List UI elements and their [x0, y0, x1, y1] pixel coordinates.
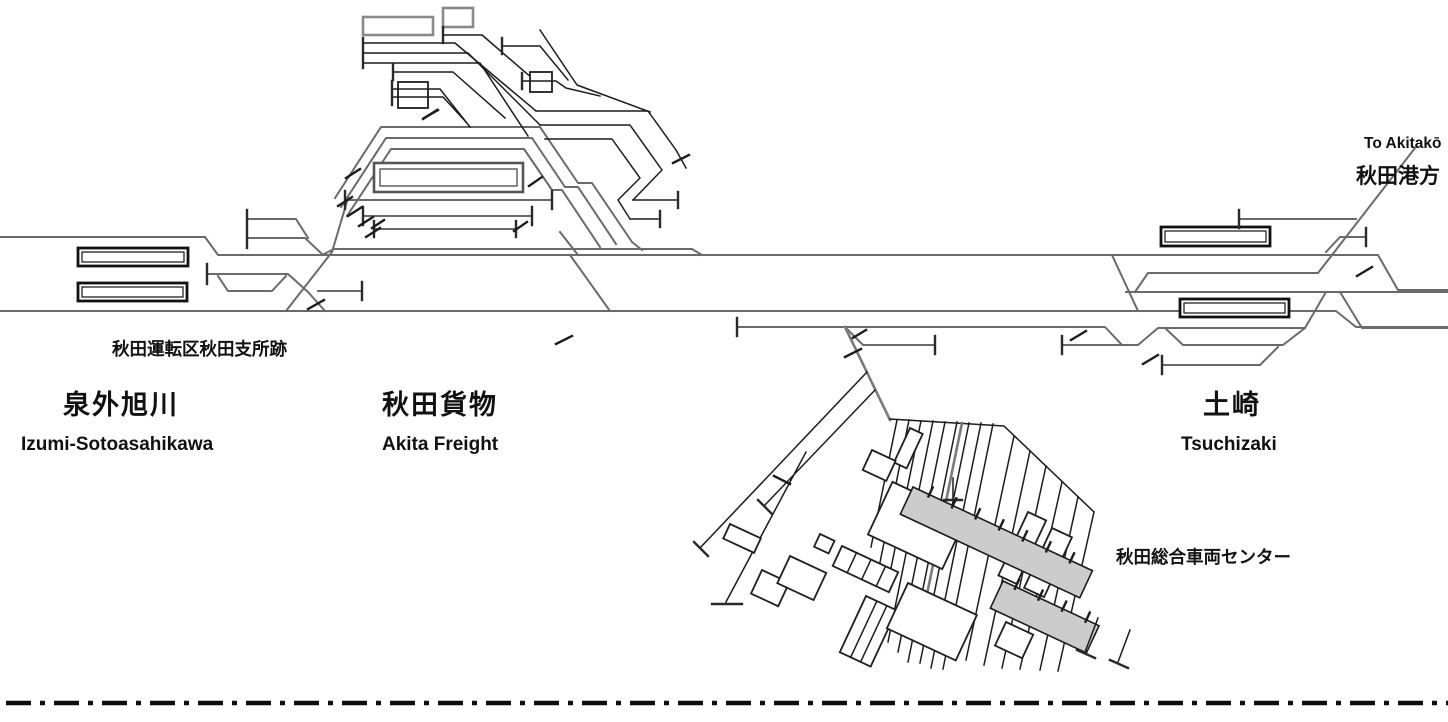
shop-row — [833, 546, 898, 592]
center-lead-tracks — [737, 318, 1122, 420]
platform — [78, 283, 187, 301]
shop-building — [840, 596, 897, 667]
akita-freight-yard — [286, 110, 702, 344]
yard-building — [894, 428, 923, 468]
track-diagram-svg — [0, 0, 1448, 722]
freight-platform — [374, 163, 523, 192]
to-akitako-ja-label: 秋田港方 — [1356, 160, 1440, 190]
workshop-building — [887, 583, 977, 660]
station-name-izumi-en: Izumi-Sotoasahikawa — [21, 434, 213, 456]
to-akitako-en-label: To Akitakō — [1364, 135, 1442, 153]
engine-shed — [398, 82, 428, 108]
station-name-izumi-ja: 泉外旭川 — [63, 383, 179, 422]
yard-building — [995, 622, 1033, 658]
station-name-akita-freight-ja: 秋田貨物 — [382, 383, 498, 422]
rolling-stock-center-label: 秋田総合車両センター — [1116, 544, 1291, 569]
depot-site-label: 秋田運転区秋田支所跡 — [112, 336, 287, 361]
station-name-tsuchizaki-ja: 土崎 — [1203, 383, 1261, 422]
akita-freight-upper-sidings — [363, 8, 650, 136]
izumi-sotoasahikawa-station — [78, 210, 362, 311]
yard-building — [723, 524, 761, 553]
station-name-tsuchizaki-en: Tsuchizaki — [1181, 434, 1277, 456]
yard-hut — [814, 534, 834, 553]
rolling-stock-center-yard — [694, 372, 1130, 671]
platform — [78, 248, 188, 266]
akita-freight-east-fan — [536, 111, 689, 227]
yard-building — [443, 8, 473, 27]
platform — [1180, 299, 1289, 317]
platform — [1161, 227, 1270, 246]
rail-track-diagram: 秋田運転区秋田支所跡 泉外旭川 Izumi-Sotoasahikawa 秋田貨物… — [0, 0, 1448, 722]
yard-hut — [530, 72, 552, 92]
yard-building — [363, 17, 433, 35]
station-name-akita-freight-en: Akita Freight — [382, 434, 498, 456]
